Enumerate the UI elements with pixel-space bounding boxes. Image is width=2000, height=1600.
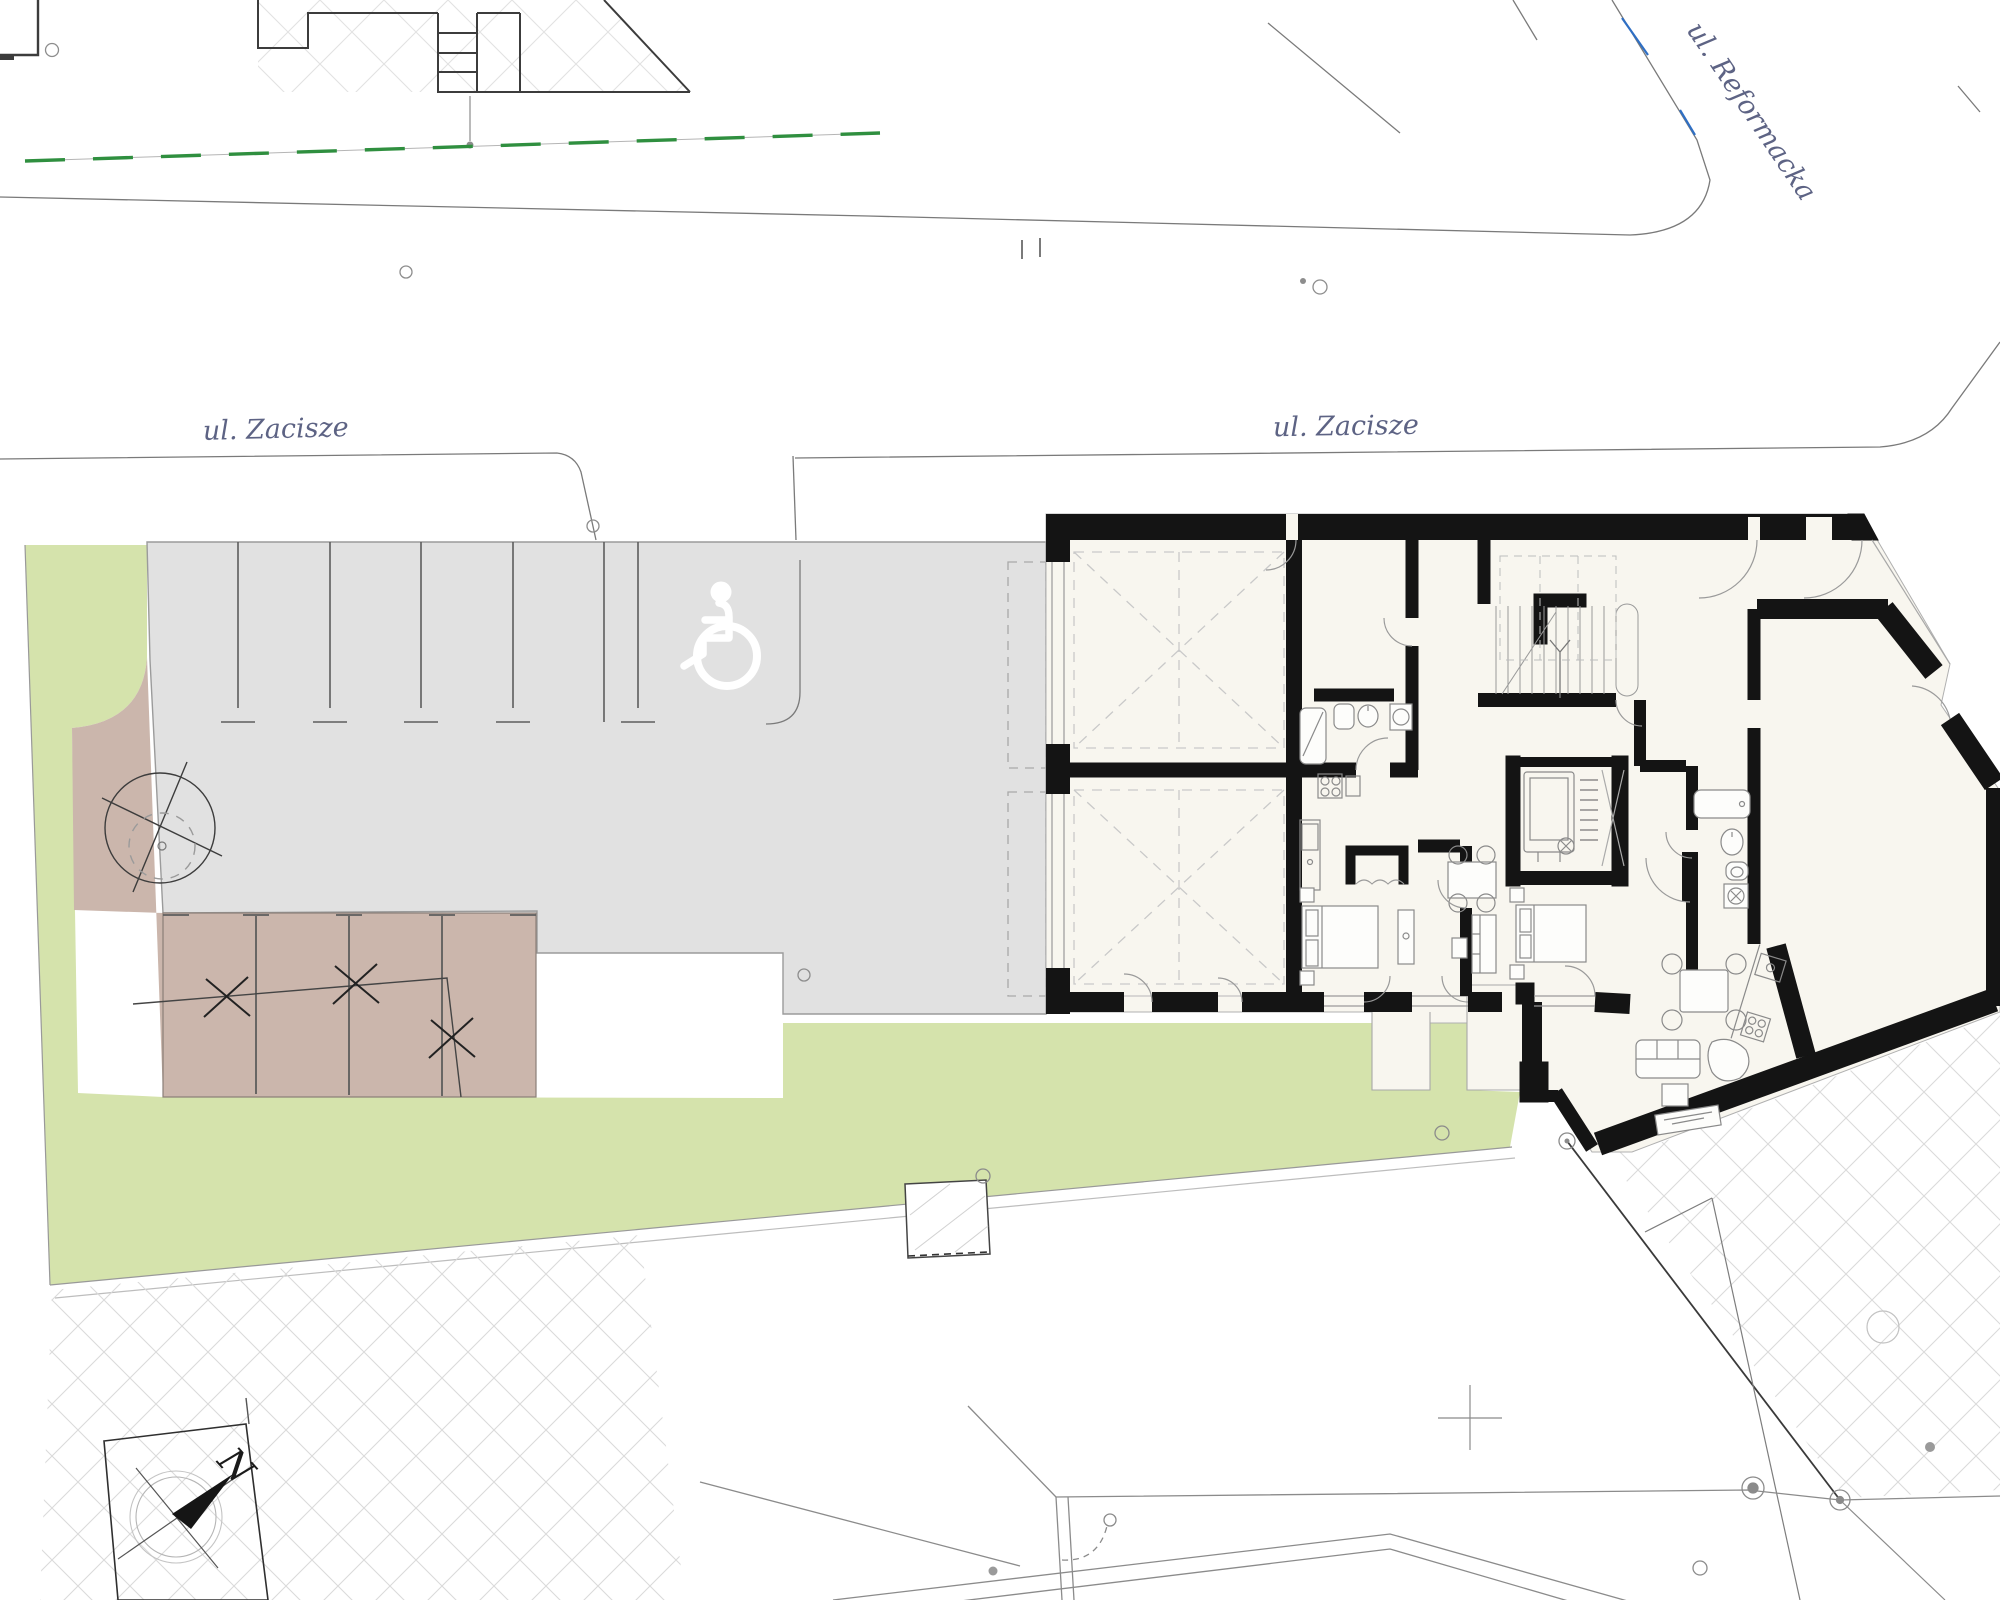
neighbor-building-outlines xyxy=(0,0,690,149)
site-plan-canvas: ul. Zacisze ul. Zacisze ul. Reformacka N xyxy=(0,0,2000,1600)
street-label-reformacka: ul. Reformacka xyxy=(1680,17,1822,207)
site-plan-drawing: ul. Zacisze ul. Zacisze ul. Reformacka N xyxy=(0,0,2000,1600)
green-dashed-boundary xyxy=(25,133,880,161)
street-label-zacisze-east: ul. Zacisze xyxy=(1273,410,1419,444)
street-label-zacisze-west: ul. Zacisze xyxy=(202,412,349,447)
utility-box-hatched xyxy=(905,1180,990,1258)
